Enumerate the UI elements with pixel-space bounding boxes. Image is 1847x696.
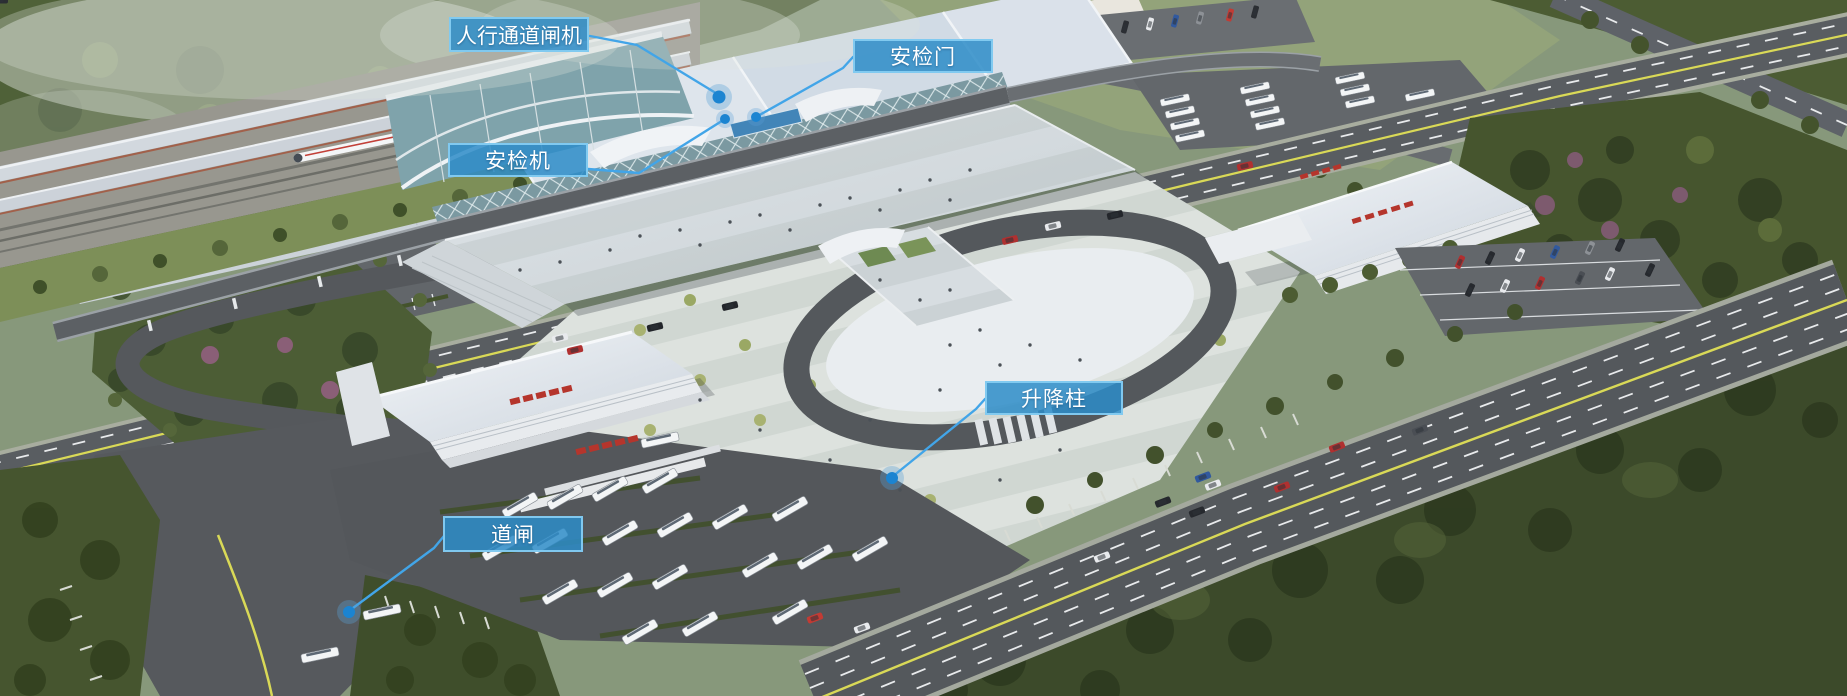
aerial-render [0, 0, 1847, 696]
callout-label-lifting-bollard: 升降柱 [985, 381, 1123, 415]
callout-label-pedestrian-channel-gate: 人行通道闸机 [449, 17, 589, 52]
callout-label-barrier-gate: 道闸 [443, 516, 583, 552]
callout-label-security-scanner: 安检机 [448, 143, 588, 177]
callout-label-security-door: 安检门 [853, 39, 993, 73]
station-aerial-diagram: 人行通道闸机 安检门 安检机 升降柱 道闸 [0, 0, 1847, 696]
